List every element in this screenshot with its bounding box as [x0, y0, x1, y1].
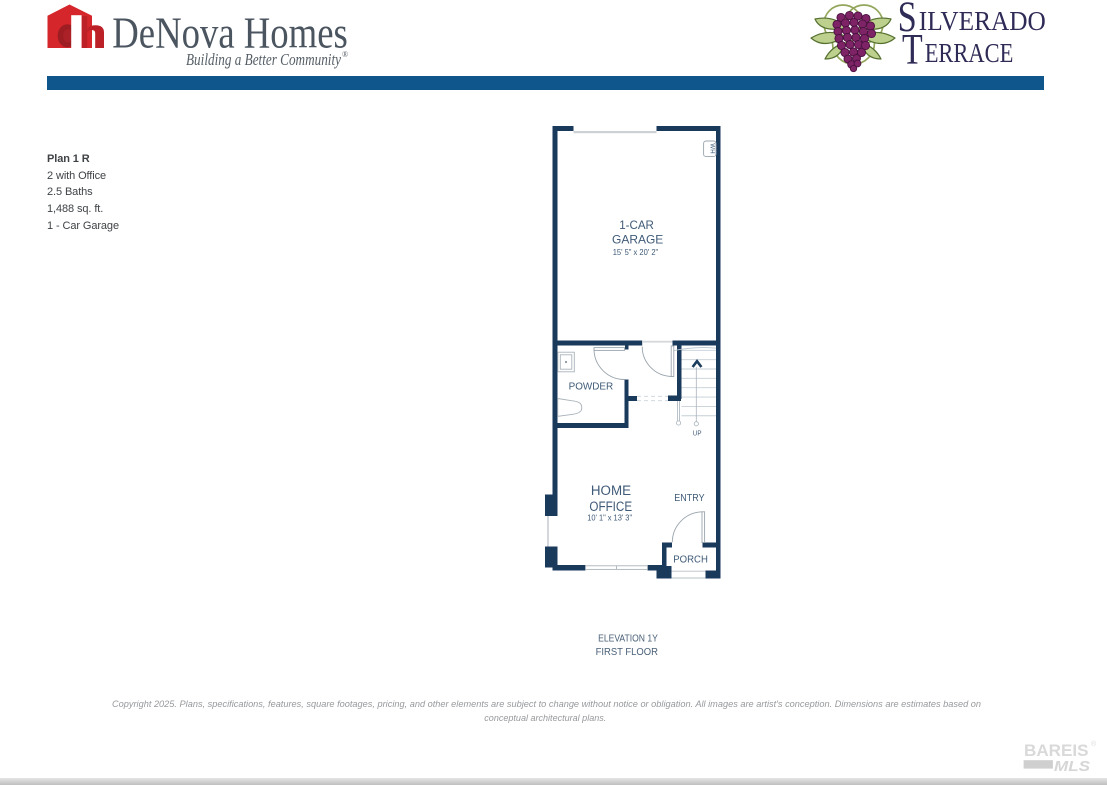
svg-text:Building a Better Community: Building a Better Community [186, 50, 341, 69]
svg-text:MLS: MLS [1054, 758, 1090, 775]
svg-text:10' 1" x 13' 3": 10' 1" x 13' 3" [587, 514, 632, 523]
svg-text:FIRST FLOOR: FIRST FLOOR [596, 646, 659, 658]
svg-text:Copyright 2025. Plans, specifi: Copyright 2025. Plans, specifications, f… [112, 699, 981, 709]
svg-text:UP: UP [693, 429, 702, 438]
svg-text:ENTRY: ENTRY [674, 492, 704, 504]
svg-text:POWDER: POWDER [569, 381, 614, 393]
svg-text:15' 5" x 20' 2": 15' 5" x 20' 2" [613, 248, 659, 257]
svg-text:ERRACE: ERRACE [925, 38, 1014, 68]
svg-text:GARAGE: GARAGE [612, 232, 663, 246]
svg-text:1-CAR: 1-CAR [619, 218, 654, 232]
svg-text:ILVERADO: ILVERADO [919, 6, 1046, 36]
svg-text:conceptual architectural plans: conceptual architectural plans. [484, 713, 606, 723]
svg-text:OFFICE: OFFICE [589, 499, 632, 514]
svg-text:ELEVATION 1Y: ELEVATION 1Y [598, 633, 658, 645]
svg-text:®: ® [342, 50, 348, 59]
svg-text:®: ® [1091, 740, 1097, 748]
svg-text:T: T [902, 27, 923, 74]
svg-text:PORCH: PORCH [673, 554, 708, 565]
svg-text:HOME: HOME [591, 483, 631, 498]
svg-text:WH: WH [708, 143, 714, 153]
